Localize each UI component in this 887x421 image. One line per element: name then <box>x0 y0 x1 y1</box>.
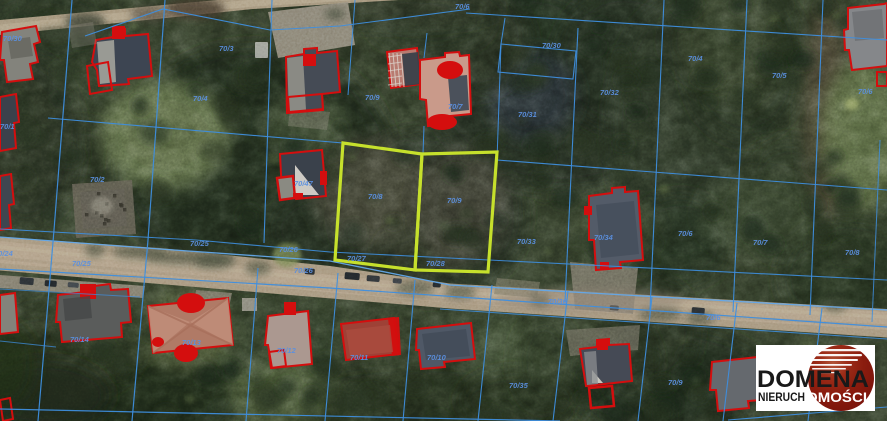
svg-text:70/7: 70/7 <box>448 102 463 111</box>
svg-text:70/8: 70/8 <box>368 192 383 201</box>
svg-text:70/10: 70/10 <box>427 353 447 362</box>
svg-text:70/35: 70/35 <box>509 381 529 390</box>
svg-text:70/31: 70/31 <box>518 110 537 119</box>
svg-text:70/36: 70/36 <box>548 297 568 306</box>
svg-text:70/13: 70/13 <box>182 338 202 347</box>
svg-text:70/6: 70/6 <box>858 87 873 96</box>
svg-text:70/26: 70/26 <box>294 266 314 275</box>
svg-text:70/14: 70/14 <box>70 335 90 344</box>
svg-text:70/33: 70/33 <box>517 237 537 246</box>
svg-text:70/9: 70/9 <box>365 93 380 102</box>
svg-text:70/28: 70/28 <box>426 259 446 268</box>
svg-text:OMOŚCI: OMOŚCI <box>806 388 867 405</box>
svg-text:70/5: 70/5 <box>772 71 787 80</box>
svg-text:70/7: 70/7 <box>753 238 768 247</box>
svg-text:70/25: 70/25 <box>72 259 92 268</box>
svg-text:70/4: 70/4 <box>688 54 703 63</box>
svg-text:70/24: 70/24 <box>0 249 14 258</box>
svg-text:70/6: 70/6 <box>455 2 470 11</box>
svg-text:70/3: 70/3 <box>219 44 234 53</box>
svg-text:70/34: 70/34 <box>594 233 614 242</box>
svg-text:70/26: 70/26 <box>279 245 299 254</box>
svg-text:70/27: 70/27 <box>347 254 367 263</box>
svg-text:70/30: 70/30 <box>542 41 562 50</box>
svg-text:70/6: 70/6 <box>706 313 721 322</box>
svg-text:70/25: 70/25 <box>190 239 210 248</box>
svg-text:70/32: 70/32 <box>600 88 620 97</box>
svg-text:70/4: 70/4 <box>193 94 208 103</box>
svg-text:70/12: 70/12 <box>277 346 297 355</box>
svg-text:70/9: 70/9 <box>668 378 683 387</box>
svg-text:70/8: 70/8 <box>845 248 860 257</box>
svg-text:70/11: 70/11 <box>350 353 368 362</box>
svg-text:70/1: 70/1 <box>0 122 15 131</box>
svg-text:70/2: 70/2 <box>90 175 105 184</box>
svg-text:70/47: 70/47 <box>294 179 314 188</box>
svg-text:70/6: 70/6 <box>678 229 693 238</box>
svg-text:NIERUCH: NIERUCH <box>758 392 805 404</box>
svg-text:70/30: 70/30 <box>3 34 23 43</box>
svg-text:70/9: 70/9 <box>447 196 462 205</box>
